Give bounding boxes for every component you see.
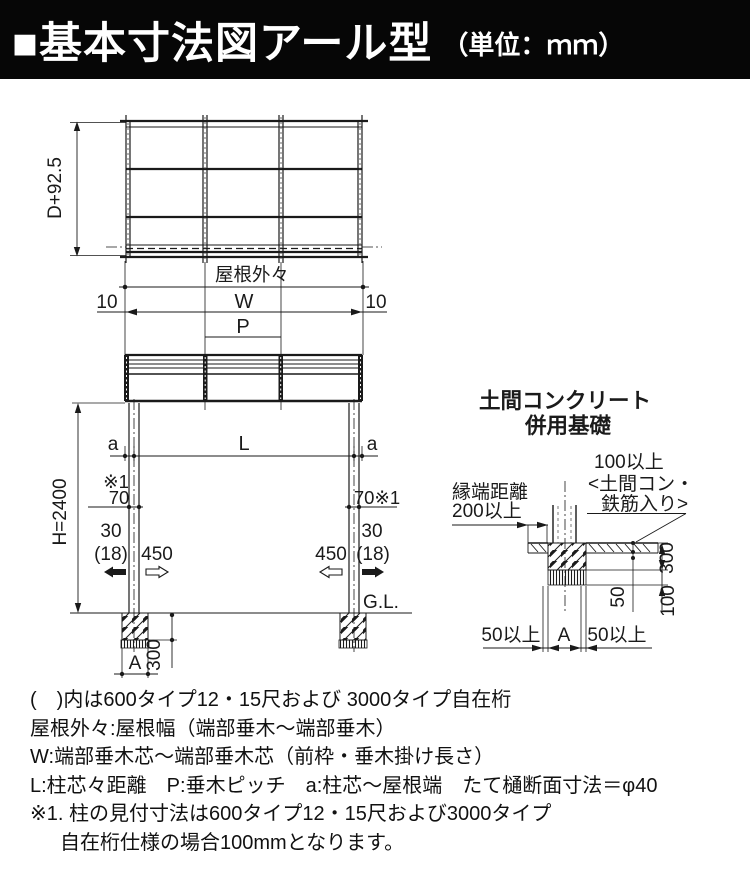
page: ■基本寸法図アール型 （単位：ｍｍ） D+92.5 <box>0 0 750 895</box>
dim-10-right: 10 <box>365 292 386 313</box>
dim-a-left: a <box>108 434 119 455</box>
dim-300-detail: 300 <box>657 542 678 574</box>
plan-thick-lines <box>120 121 368 257</box>
note-line-4: L:柱芯々距離 P:垂木ピッチ a:柱芯～屋根端 たて樋断面寸法＝φ40 <box>30 772 740 801</box>
white-arrow-right-icon <box>146 567 168 578</box>
roof-band-lines <box>125 360 362 368</box>
roof-elevation-view: 10 W 10 P <box>50 291 412 678</box>
dim-dot <box>347 505 351 509</box>
note-line-1: ( )内は600タイプ12・15尺および 3000タイプ自在桁 <box>30 686 740 715</box>
slab-note-label2: <土間コン・ <box>588 473 694 495</box>
dim-dot <box>146 672 150 676</box>
foundation-detail-view: 土間コンクリート 併用基礎 縁端距離 200以上 100以上 <土間コン・ 鉄筋… <box>452 389 694 652</box>
dim-a-footing: A <box>129 653 142 674</box>
dim-18-left: (18) <box>94 544 128 565</box>
footnotes: ( )内は600タイプ12・15尺および 3000タイプ自在桁 屋根外々:屋根幅… <box>30 686 740 857</box>
dim-w: W <box>235 291 254 313</box>
dim-dot <box>352 454 356 458</box>
detail-title-line2: 併用基礎 <box>524 413 612 438</box>
dim-l: L <box>238 433 249 455</box>
note-line-3: W:端部垂木芯～端部垂木芯（前枠・垂木掛け長さ） <box>30 743 740 772</box>
dim-70-right: 70※1 <box>354 487 400 508</box>
arrow-up-icon <box>75 403 81 413</box>
dim-450-right: 450 <box>315 544 347 565</box>
dim-a-detail: A <box>558 625 571 646</box>
dim-100-detail: 100 <box>658 585 679 617</box>
dim-dot <box>132 454 136 458</box>
roof-plan-view: D+92.5 屋根外々 <box>45 115 382 355</box>
footing-section <box>548 543 586 585</box>
plan-width-label: 屋根外々 <box>215 264 289 285</box>
arrow-right-icon <box>570 645 581 652</box>
unit-label: （単位：ｍｍ） <box>442 25 624 62</box>
black-arrow-left-icon <box>104 567 126 578</box>
dim-18-right: (18) <box>356 544 390 565</box>
page-title: ■基本寸法図アール型 <box>12 9 432 71</box>
dim-dot <box>360 454 364 458</box>
plan-thin-lines <box>126 127 362 245</box>
rafter-stubs <box>205 401 281 410</box>
white-arrow-left-icon <box>320 567 342 578</box>
arrow-right-icon <box>537 522 548 529</box>
arrow-up-icon <box>74 122 80 132</box>
slab-note-leader <box>587 514 686 543</box>
dim-300: 300 <box>144 639 165 671</box>
min-right-label: 50以上 <box>587 624 646 646</box>
arrow-down-icon <box>75 603 81 613</box>
dim-a-right: a <box>367 434 378 455</box>
dim-50: 50 <box>608 586 629 607</box>
dim-70-left: 70 <box>109 487 130 508</box>
dim-10-left: 10 <box>96 292 117 313</box>
dim-30-right: 30 <box>361 521 382 542</box>
plan-vertical-rafters <box>126 115 362 263</box>
title-banner: ■基本寸法図アール型 （単位：ｍｍ） <box>0 0 750 79</box>
edge-distance-label1: 縁端距離 <box>452 481 528 503</box>
ground-label: G.L. <box>363 592 399 613</box>
dim-p: P <box>236 316 249 338</box>
plan-depth-ext-lines <box>70 123 126 256</box>
arrow-left-icon <box>126 309 137 316</box>
dim-dot <box>170 613 174 617</box>
plan-depth-label: D+92.5 <box>45 157 66 219</box>
dim-dot <box>123 454 127 458</box>
right-ref-lines <box>586 543 668 585</box>
black-arrow-right-icon <box>362 567 384 578</box>
edge-distance-label2: 200以上 <box>452 500 522 522</box>
footing-right <box>339 613 367 648</box>
note-line-6: 自在桁仕様の場合100mmとなります。 <box>30 829 740 858</box>
dim-h: H=2400 <box>50 478 71 545</box>
dimension-diagram: D+92.5 屋根外々 10 W 10 P <box>0 79 750 695</box>
roof-rafter-bars <box>124 355 363 401</box>
dim-dot <box>170 638 174 642</box>
dim-450-left: 450 <box>141 544 173 565</box>
min-left-label: 50以上 <box>481 624 540 646</box>
dim-dot <box>357 505 361 509</box>
dim-dot <box>137 505 141 509</box>
detail-title-line1: 土間コンクリート <box>479 389 651 413</box>
dim-dot <box>127 505 131 509</box>
slab-note-label1: 100以上 <box>594 451 664 473</box>
note-line-5: ※1. 柱の見付寸法は600タイプ12・15尺および3000タイプ <box>30 800 740 829</box>
slab-note-label3: 鉄筋入り> <box>601 493 688 515</box>
arrow-down-icon <box>74 247 80 257</box>
note-line-2: 屋根外々:屋根幅（端部垂木～端部垂木） <box>30 715 740 744</box>
dim-dot <box>120 672 124 676</box>
arrow-right-icon <box>517 522 528 529</box>
dim-30-left: 30 <box>100 521 121 542</box>
arrow-right-icon <box>351 309 362 316</box>
plan-hidden-lines <box>128 117 360 261</box>
